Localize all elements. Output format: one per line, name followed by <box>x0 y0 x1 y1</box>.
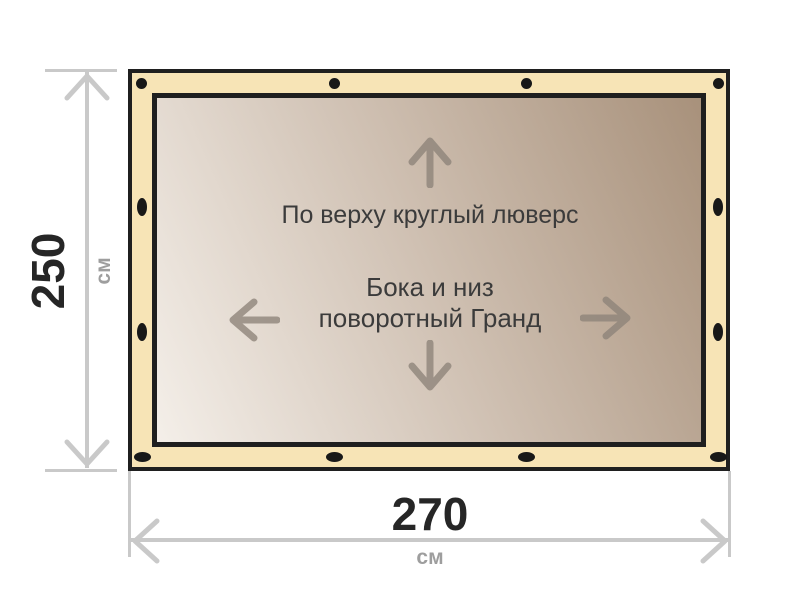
arrow-down-icon <box>407 340 453 394</box>
grommet-oval-bottom-1 <box>134 452 151 462</box>
dim-arrow-up-icon <box>63 71 111 101</box>
height-value: 250 <box>23 191 73 351</box>
arrow-up-icon <box>407 134 453 188</box>
grommet-oval-bottom-3 <box>518 452 535 462</box>
width-unit: см <box>380 546 480 570</box>
grommet-round-top-1 <box>136 78 147 89</box>
height-dimension-tick-bottom <box>45 469 117 472</box>
grommet-round-top-3 <box>521 78 532 89</box>
annotation-sides-line1: Бока и низ <box>130 272 730 303</box>
dim-arrow-right-icon <box>700 517 730 565</box>
annotation-sides-line2: поворотный Гранд <box>130 303 730 334</box>
annotation-sides-bottom: Бока и низ поворотный Гранд <box>130 272 730 334</box>
height-dimension-line <box>85 72 89 468</box>
height-unit: см <box>92 241 116 301</box>
grommet-oval-bottom-2 <box>326 452 343 462</box>
grommet-round-top-4 <box>713 78 724 89</box>
width-value: 270 <box>330 489 530 539</box>
grommet-round-top-2 <box>329 78 340 89</box>
dim-arrow-down-icon <box>63 439 111 469</box>
size-diagram: По верху круглый люверс Бока и низ повор… <box>0 0 800 600</box>
annotation-top-edge: По верху круглый люверс <box>130 200 730 231</box>
arrow-left-icon <box>226 297 280 343</box>
dim-arrow-left-icon <box>130 517 160 565</box>
grommet-oval-bottom-4 <box>710 452 727 462</box>
banner-fabric-edge <box>128 69 730 471</box>
arrow-right-icon <box>580 295 634 341</box>
